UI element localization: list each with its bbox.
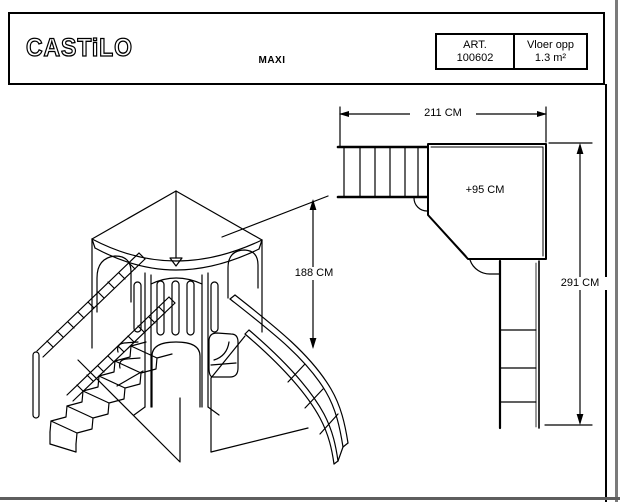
- dimension-width-label: 211 CM: [410, 107, 476, 120]
- slide-plan: [500, 261, 539, 428]
- roof: [92, 191, 262, 270]
- dimension-platform-height-label: +95 CM: [452, 184, 518, 197]
- isometric-view: [33, 191, 348, 464]
- platform-plan: [428, 144, 546, 274]
- dimension-length-label: 291 CM: [552, 277, 608, 290]
- balusters: [134, 281, 218, 335]
- stairs-plan: [338, 147, 428, 211]
- slide-entrance: [209, 333, 238, 377]
- technical-drawing: [0, 0, 620, 502]
- dimension-height-label: 188 CM: [284, 267, 344, 280]
- door-arch: [152, 342, 200, 407]
- slide-isometric: [211, 295, 348, 464]
- plan-view: [338, 107, 592, 428]
